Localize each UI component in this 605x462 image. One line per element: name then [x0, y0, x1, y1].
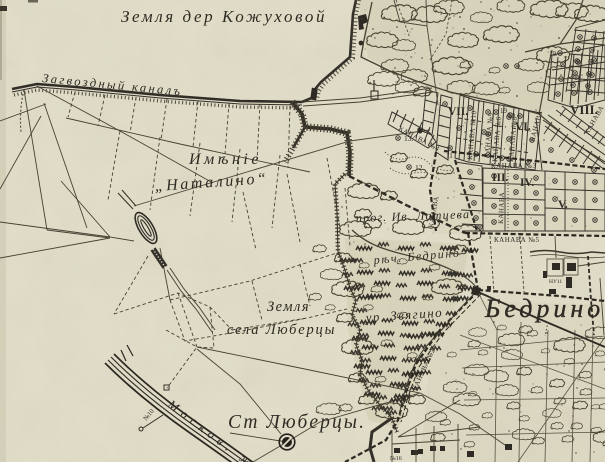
svg-text:19: 19: [500, 107, 508, 115]
svg-text:Земля дер Кожуховой: Земля дер Кожуховой: [121, 7, 327, 26]
svg-text:IV.: IV.: [520, 177, 534, 189]
svg-text:Земля: Земля: [267, 299, 310, 315]
svg-text:КАНАВА №5: КАНАВА №5: [494, 236, 540, 244]
svg-text:12: 12: [415, 163, 423, 172]
svg-text:Имѣніе: Имѣніе: [188, 151, 262, 168]
svg-text:Ст Люберцы.: Ст Люберцы.: [228, 412, 366, 433]
svg-text:11: 11: [446, 152, 453, 160]
svg-text:КАНАВА: КАНАВА: [497, 192, 506, 224]
svg-text:VII.: VII.: [448, 106, 468, 118]
svg-text:села Люберцы: села Люберцы: [227, 322, 336, 338]
svg-text:19: 19: [549, 50, 557, 58]
svg-text:V.: V.: [558, 199, 568, 211]
svg-text:III.: III.: [492, 172, 508, 184]
svg-text:НУ11: НУ11: [549, 279, 562, 285]
svg-text:10: 10: [508, 112, 516, 120]
